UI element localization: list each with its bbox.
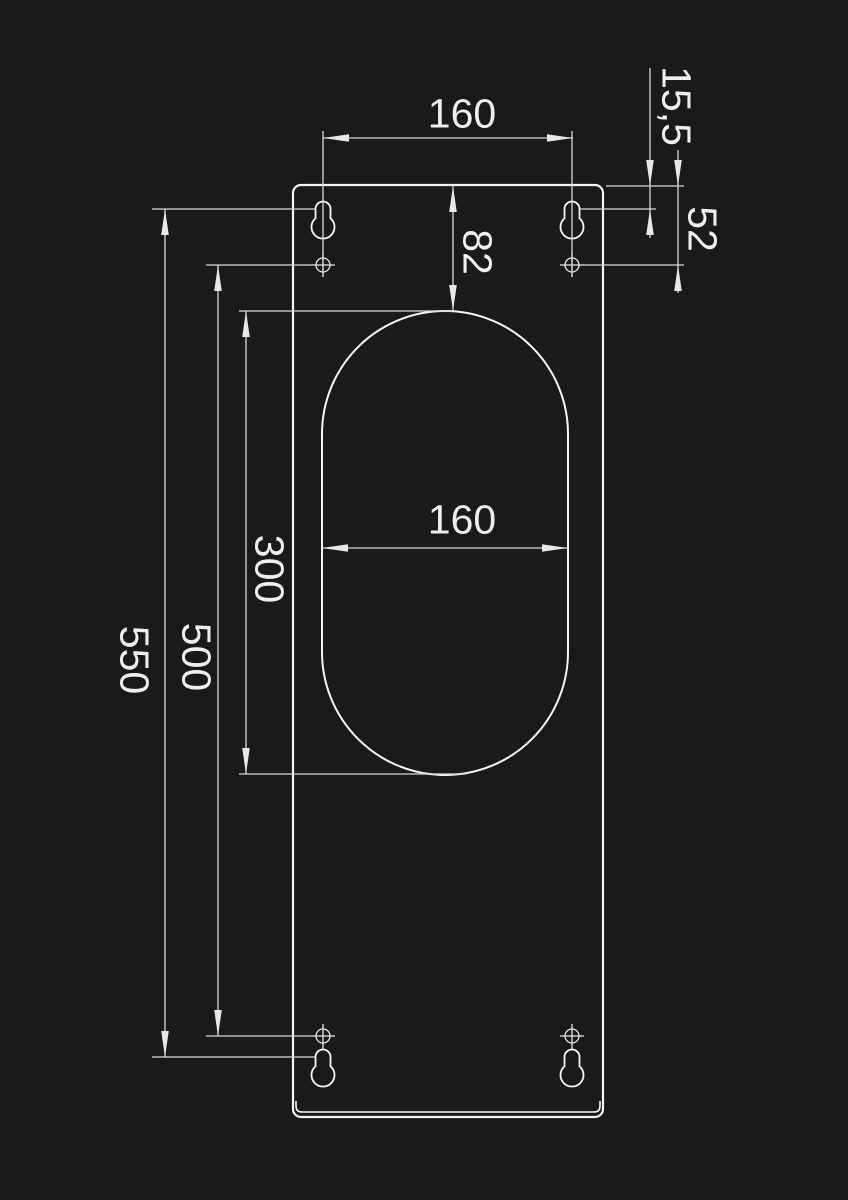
- keyhole-bottom-right: [561, 1050, 584, 1087]
- drawing-canvas: 160 15,5 52 82 160 300 500 550: [0, 0, 848, 1200]
- plate-outline: [293, 185, 603, 1117]
- dim-label-slot-offset: 15,5: [656, 66, 697, 146]
- extension-lines: [152, 131, 684, 1057]
- dim-label-hole-spacing: 500: [176, 623, 217, 691]
- cutout-obround: [322, 311, 568, 775]
- dim-label-cutout-width: 160: [428, 500, 496, 541]
- plate-hem-line: [296, 1101, 600, 1112]
- part-geometry: [293, 185, 603, 1117]
- crosshair-bottom-right: [560, 1024, 584, 1049]
- dim-label-hole-offset: 52: [682, 206, 723, 252]
- crosshair-bottom-left: [311, 1024, 335, 1049]
- keyhole-bottom-left: [312, 1050, 335, 1087]
- dimension-drawing: [0, 0, 848, 1200]
- dim-label-cutout-offset: 82: [457, 229, 498, 275]
- dimension-lines: [165, 68, 678, 1057]
- dim-label-top-spacing: 160: [428, 94, 496, 135]
- hole-center-marks: [311, 253, 584, 1049]
- dim-label-cutout-height: 300: [249, 535, 290, 603]
- dim-label-slot-spacing: 550: [114, 626, 155, 694]
